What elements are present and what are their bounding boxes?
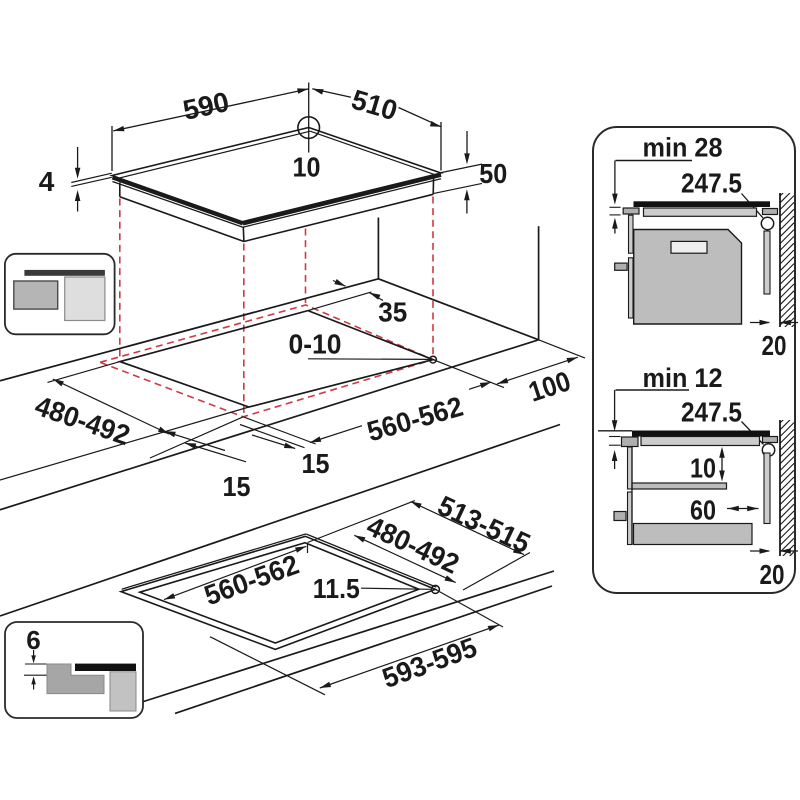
svg-text:20: 20 [760,559,785,590]
svg-text:11.5: 11.5 [313,573,360,604]
svg-text:247.5: 247.5 [681,168,742,199]
svg-text:247.5: 247.5 [681,396,742,427]
svg-text:20: 20 [762,330,787,361]
svg-text:60: 60 [690,495,716,526]
svg-text:0-10: 0-10 [289,329,342,360]
svg-text:min 12: min 12 [643,363,723,393]
svg-text:10: 10 [293,151,321,182]
svg-text:min 28: min 28 [643,133,723,163]
svg-text:4: 4 [39,166,55,197]
svg-text:35: 35 [378,296,407,327]
svg-text:50: 50 [479,158,507,189]
svg-text:15: 15 [302,448,330,479]
svg-text:15: 15 [223,471,251,502]
svg-text:10: 10 [690,453,716,484]
